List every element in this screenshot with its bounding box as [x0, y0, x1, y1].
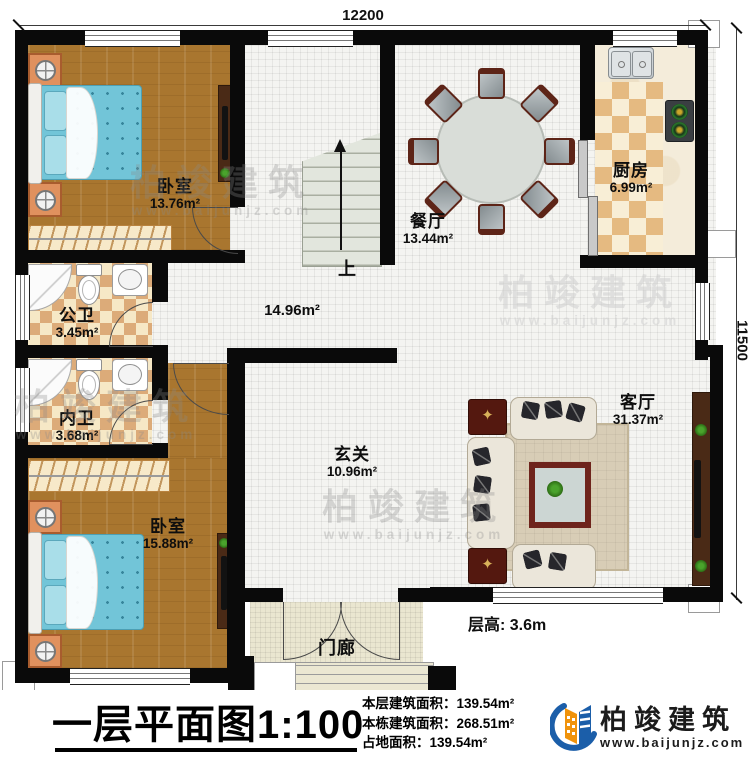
plan-title: 一层平面图1:100: [52, 692, 364, 750]
headboard: [28, 83, 42, 184]
porch-pillar: [428, 666, 456, 690]
stat-row: 占地面积：139.54m²: [362, 733, 514, 753]
window: [15, 275, 30, 340]
room-area: 15.88m²: [143, 536, 193, 551]
stat-row: 本栋建筑面积：268.51m²: [362, 714, 514, 734]
title-underline: [55, 748, 357, 752]
wall: [152, 263, 168, 302]
headboard: [28, 532, 42, 634]
room-name: 卧室: [143, 517, 193, 536]
room-label-bath-public: 公卫 3.45m²: [56, 306, 99, 340]
room-name: 厨房: [610, 161, 653, 180]
pillow: [44, 135, 67, 175]
side-table: ✦: [468, 548, 507, 584]
nightstand: [28, 634, 62, 668]
wall: [245, 588, 283, 602]
window: [613, 30, 677, 47]
sink-basin: [118, 269, 142, 290]
wall: [152, 358, 168, 400]
stat-value: 139.54m²: [430, 735, 488, 750]
room-area: 3.68m²: [56, 428, 99, 443]
room-name: 卧室: [150, 177, 200, 196]
room-name: 门廊: [318, 638, 356, 658]
sofa-pillow: [548, 552, 567, 571]
kitchen-sink: [608, 47, 654, 79]
floor-plan-canvas: ✦ ✦ 12200 1150: [0, 0, 750, 767]
room-area: 10.96m²: [327, 464, 377, 479]
drain-icon: [618, 61, 625, 68]
area-stats: 本层建筑面积：139.54m² 本栋建筑面积：268.51m² 占地面积：139…: [362, 694, 514, 753]
drain-icon: [639, 61, 646, 68]
kitchen-sliding-door: [588, 196, 598, 256]
burner-icon: [671, 104, 688, 120]
wall: [15, 250, 245, 263]
kitchen-sliding-door: [578, 140, 588, 198]
plan-scale: 1:100: [257, 703, 364, 747]
sink-basin: [632, 51, 652, 77]
title-block: 一层平面图1:100 本层建筑面积：139.54m² 本栋建筑面积：268.51…: [0, 690, 750, 767]
stat-label: 占地面积：: [362, 735, 430, 750]
dining-chair: [408, 138, 439, 165]
brand-name: 柏竣建筑: [600, 698, 736, 737]
porch-side-step: [254, 662, 296, 692]
bedroom1-wardrobe: [28, 225, 172, 252]
stat-row: 本层建筑面积：139.54m²: [362, 694, 514, 714]
window: [268, 30, 353, 47]
porch-pillar: [228, 656, 254, 692]
wall: [380, 45, 395, 265]
dimension-top-value: 12200: [323, 7, 403, 24]
wall: [580, 45, 595, 140]
toilet: [74, 359, 102, 401]
dimension-right-value: 11500: [734, 311, 750, 371]
sink-basin: [611, 51, 631, 77]
room-label-bedroom1: 卧室 13.76m²: [150, 177, 200, 211]
room-label-bath-private: 内卫 3.68m²: [56, 409, 99, 443]
window: [695, 283, 710, 340]
bedroom1-bed: [28, 83, 144, 182]
bedroom2-bed: [28, 532, 146, 632]
room-name: 客厅: [613, 393, 663, 412]
stat-label: 本栋建筑面积：: [362, 716, 457, 731]
toilet-inner: [82, 375, 96, 395]
stove: [665, 100, 694, 142]
window: [70, 668, 190, 685]
floor-height-note: 层高: 3.6m: [468, 611, 546, 635]
room-name: 餐厅: [403, 212, 453, 231]
lamp-icon: [35, 641, 56, 662]
bed-sheet: [66, 87, 98, 179]
lamp-icon: [35, 190, 56, 211]
vent-box: [707, 230, 736, 258]
room-label-kitchen: 厨房 6.99m²: [610, 161, 653, 195]
sofa-pillow: [521, 401, 541, 421]
dimension-line-top: [18, 25, 706, 26]
room-area: 31.37m²: [613, 412, 663, 427]
burner-icon: [671, 122, 688, 138]
nightstand: [28, 182, 62, 217]
wall: [227, 445, 245, 668]
stairs-up-label: 上: [338, 255, 356, 281]
brand-website: www.baijunjz.com: [600, 735, 744, 750]
stair-arrow-icon: [334, 139, 346, 152]
toilet: [74, 264, 102, 306]
wall: [230, 45, 245, 207]
stair-direction-line: [340, 152, 342, 250]
tv-icon: [222, 106, 228, 160]
toilet-inner: [82, 280, 96, 300]
side-table: ✦: [468, 399, 507, 435]
window: [15, 368, 30, 432]
pillow: [44, 585, 67, 625]
nightstand: [28, 500, 62, 534]
dining-chair: [478, 204, 505, 235]
stat-label: 本层建筑面积：: [362, 696, 457, 711]
wall: [227, 348, 397, 363]
room-area: 14.96m²: [264, 303, 320, 320]
stat-value: 268.51m²: [457, 716, 515, 731]
sofa-pillow: [473, 475, 492, 494]
window: [493, 587, 663, 604]
room-area: 6.99m²: [610, 180, 653, 195]
room-area: 13.44m²: [403, 231, 453, 246]
wall: [398, 588, 433, 602]
lamp-icon: [35, 60, 56, 81]
plant-icon: [547, 481, 563, 497]
stat-value: 139.54m²: [457, 696, 515, 711]
pillow: [44, 540, 67, 580]
sofa-pillow: [544, 400, 563, 419]
room-name: 公卫: [56, 306, 99, 325]
dining-chair: [478, 68, 505, 99]
wall: [580, 255, 708, 268]
sofa-pillow: [471, 446, 491, 466]
room-label-hallway: 14.96m²: [264, 303, 320, 320]
bathroom-sink: [112, 359, 148, 391]
room-label-dining: 餐厅 13.44m²: [403, 212, 453, 246]
plan-title-text: 一层平面图: [52, 703, 257, 747]
wall: [15, 445, 168, 458]
plant-icon: [695, 560, 707, 572]
bathroom-sink: [112, 264, 148, 296]
room-label-living: 客厅 31.37m²: [613, 393, 663, 427]
brand-logo-icon: [550, 696, 598, 758]
plant-icon: [220, 168, 230, 178]
dining-chair: [544, 138, 575, 165]
lamp-icon: [35, 507, 56, 528]
room-area: 3.45m²: [56, 325, 99, 340]
tv-icon: [694, 460, 701, 538]
room-label-bedroom2: 卧室 15.88m²: [143, 517, 193, 551]
bedroom2-wardrobe: [28, 460, 170, 492]
room-area: 13.76m²: [150, 196, 200, 211]
room-name: 玄关: [327, 445, 377, 464]
window: [85, 30, 180, 47]
room-label-foyer: 玄关 10.96m²: [327, 445, 377, 479]
wall: [227, 363, 245, 445]
sofa-pillow: [472, 503, 491, 522]
bed-sheet: [66, 536, 98, 629]
wall: [710, 355, 723, 602]
nightstand: [28, 53, 62, 87]
room-label-porch: 门廊: [318, 638, 356, 658]
pillow: [44, 91, 67, 131]
sink-basin: [118, 364, 142, 385]
room-name: 内卫: [56, 409, 99, 428]
plant-icon: [695, 424, 707, 436]
